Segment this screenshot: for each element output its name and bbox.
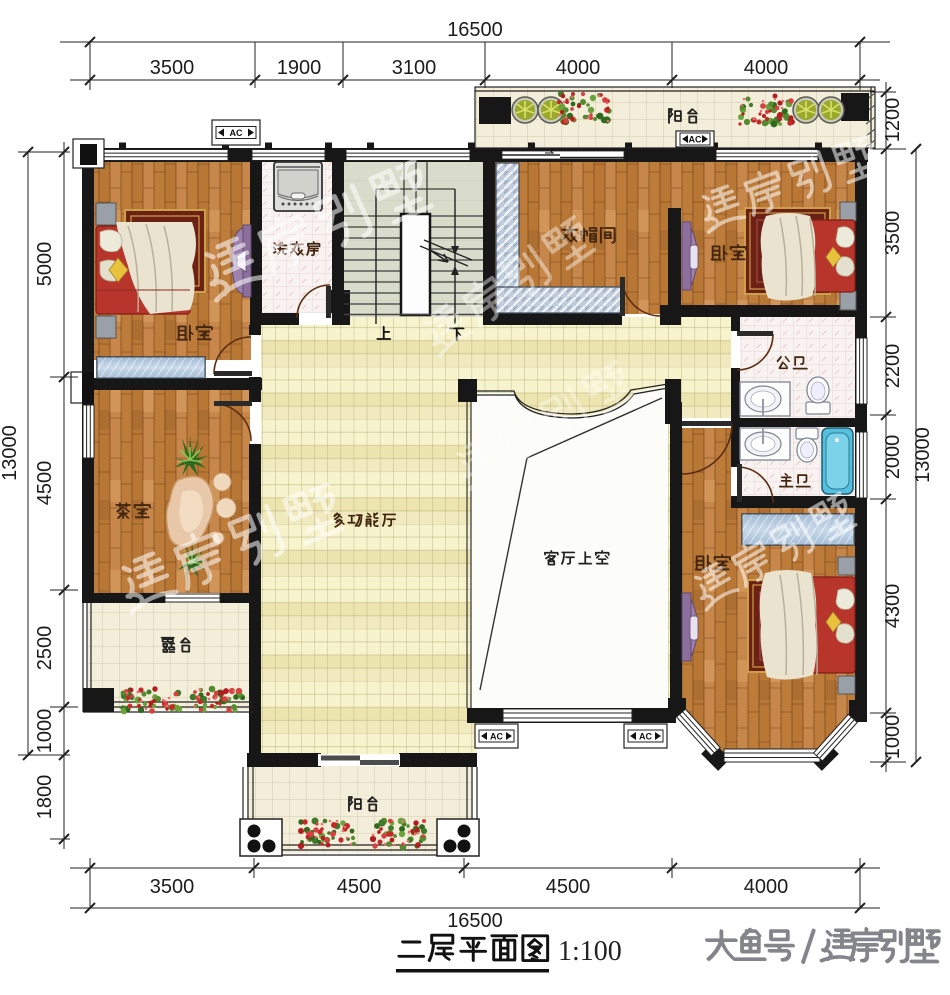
svg-text:1900: 1900	[277, 57, 322, 79]
svg-text:4500: 4500	[337, 876, 382, 898]
svg-text:AC: AC	[230, 128, 243, 138]
svg-text:4000: 4000	[744, 57, 789, 79]
svg-text:4500: 4500	[546, 876, 591, 898]
svg-text:5000: 5000	[34, 242, 56, 287]
svg-text:2500: 2500	[34, 626, 56, 671]
svg-text:13000: 13000	[0, 425, 21, 481]
svg-text:16500: 16500	[447, 19, 503, 41]
svg-text:1800: 1800	[34, 775, 56, 820]
svg-text:3500: 3500	[150, 57, 195, 79]
svg-text:4300: 4300	[882, 584, 904, 629]
svg-text:AC: AC	[689, 135, 702, 145]
svg-text:13000: 13000	[912, 427, 934, 483]
svg-text:3500: 3500	[882, 211, 904, 256]
svg-text:16500: 16500	[447, 910, 503, 932]
svg-text:3100: 3100	[392, 57, 437, 79]
svg-text:1000: 1000	[882, 715, 904, 760]
svg-text:4000: 4000	[744, 876, 789, 898]
svg-text:2200: 2200	[882, 344, 904, 389]
svg-text:2000: 2000	[882, 435, 904, 480]
svg-text:1000: 1000	[34, 709, 56, 754]
svg-text:4000: 4000	[556, 57, 601, 79]
svg-text:AC: AC	[639, 732, 652, 742]
svg-text:1200: 1200	[882, 98, 904, 143]
svg-text:4500: 4500	[34, 461, 56, 506]
svg-text:AC: AC	[490, 732, 503, 742]
svg-text:3500: 3500	[150, 876, 195, 898]
svg-text:1:100: 1:100	[558, 936, 622, 967]
